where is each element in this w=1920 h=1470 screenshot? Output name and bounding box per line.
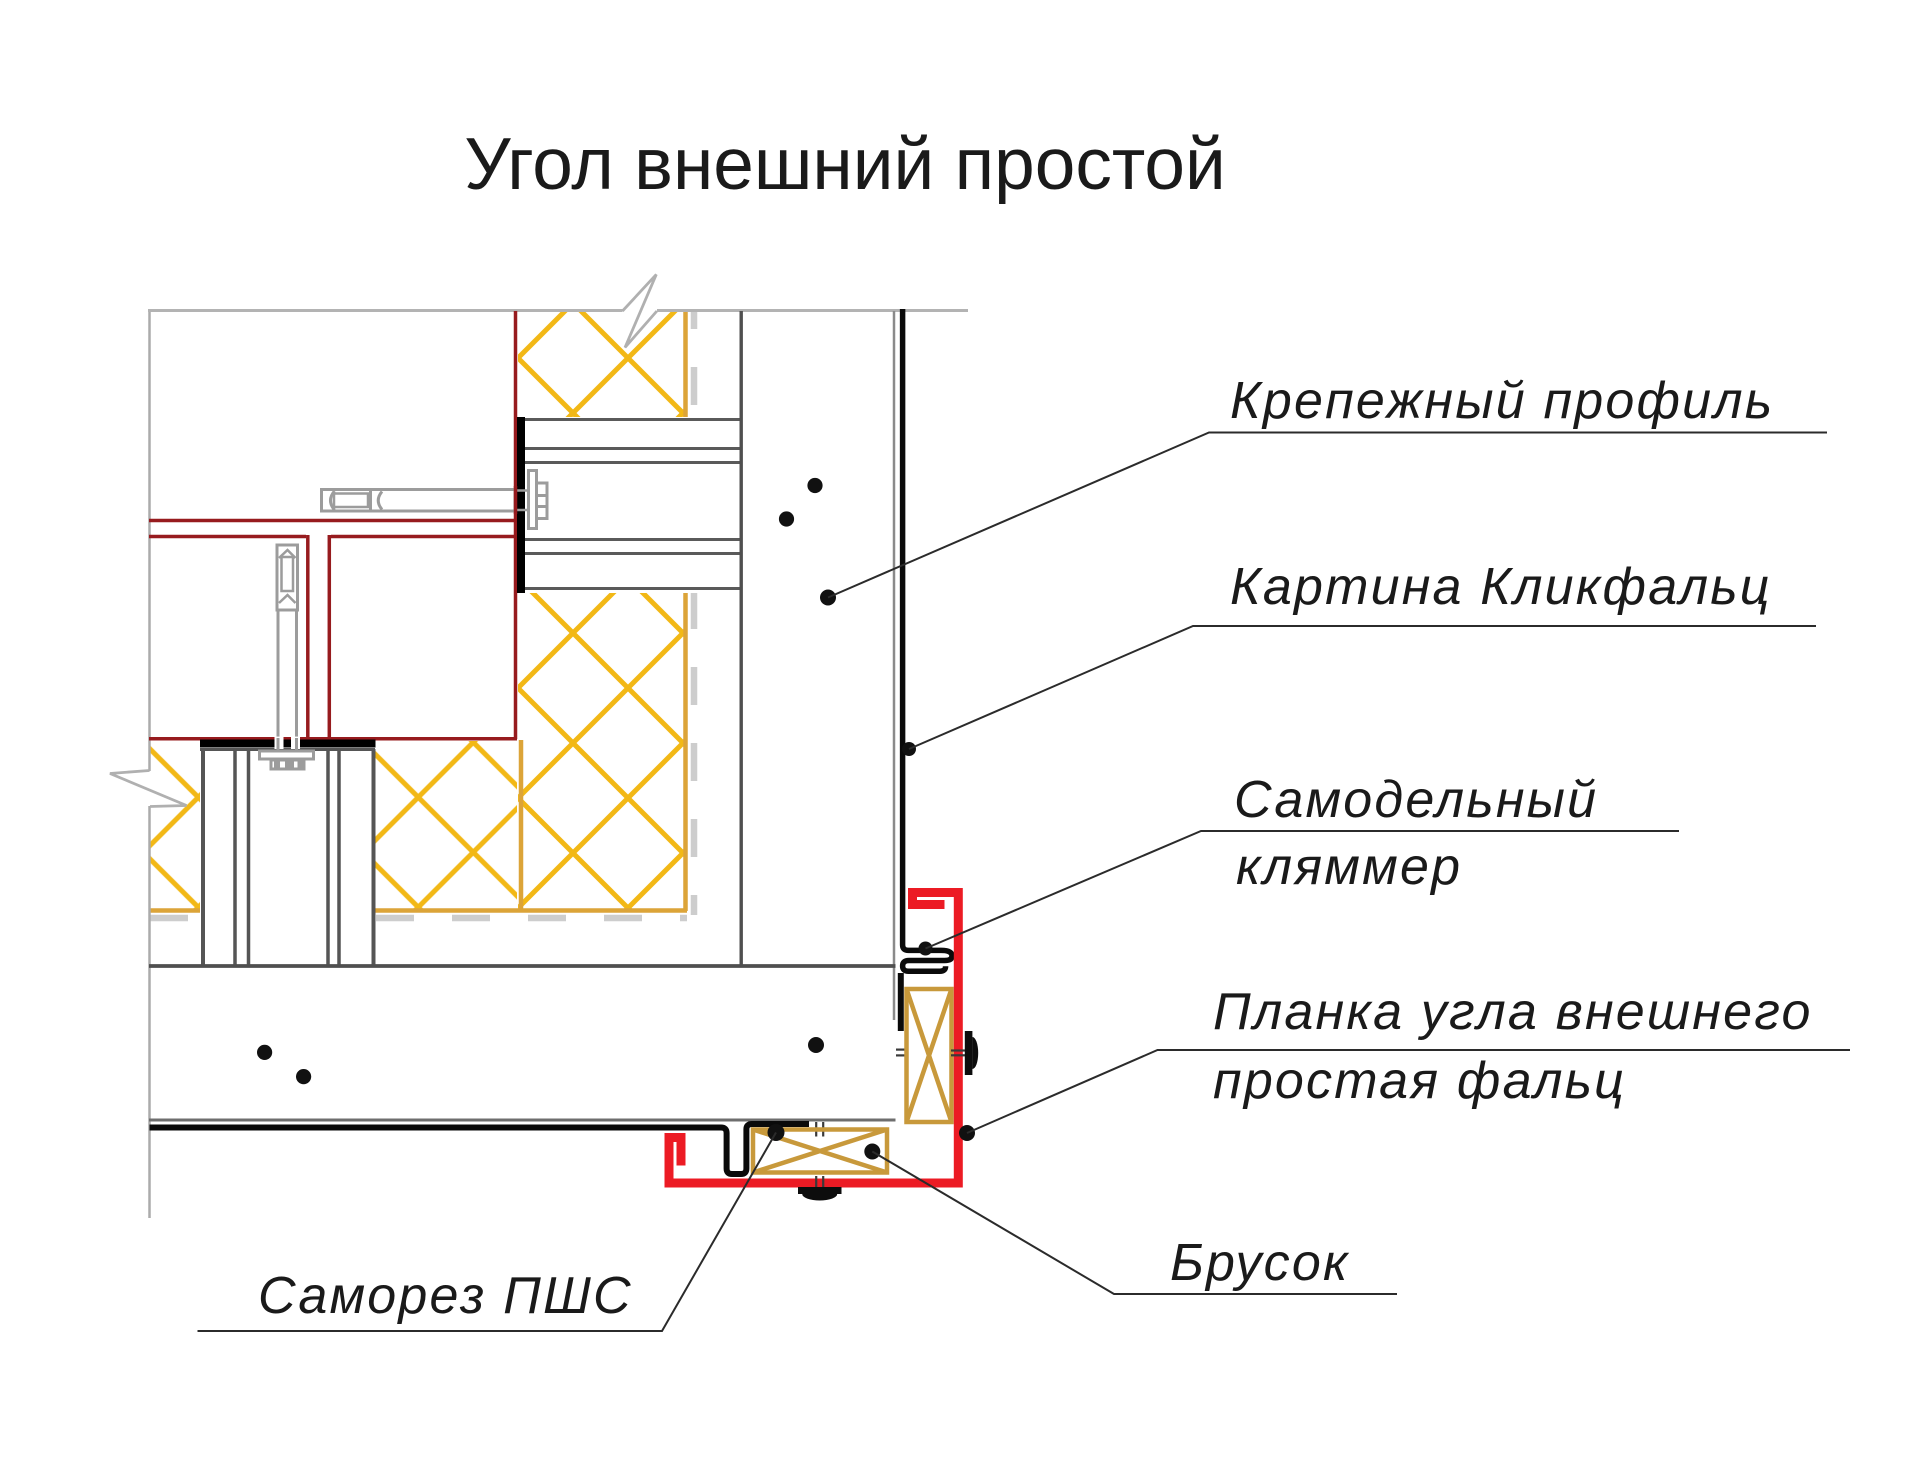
svg-text:простая фальц: простая фальц <box>1213 1052 1626 1110</box>
svg-text:Картина Кликфальц: Картина Кликфальц <box>1230 558 1772 616</box>
svg-text:Брусок: Брусок <box>1170 1234 1350 1292</box>
svg-text:Самодельный: Самодельный <box>1234 771 1598 829</box>
svg-text:Планка угла внешнего: Планка угла внешнего <box>1213 983 1813 1041</box>
svg-text:Угол внешний простой: Угол внешний простой <box>464 124 1226 205</box>
svg-text:Крепежный профиль: Крепежный профиль <box>1230 372 1774 430</box>
svg-text:кляммер: кляммер <box>1236 838 1462 896</box>
svg-text:Саморез ПШС: Саморез ПШС <box>258 1267 633 1325</box>
